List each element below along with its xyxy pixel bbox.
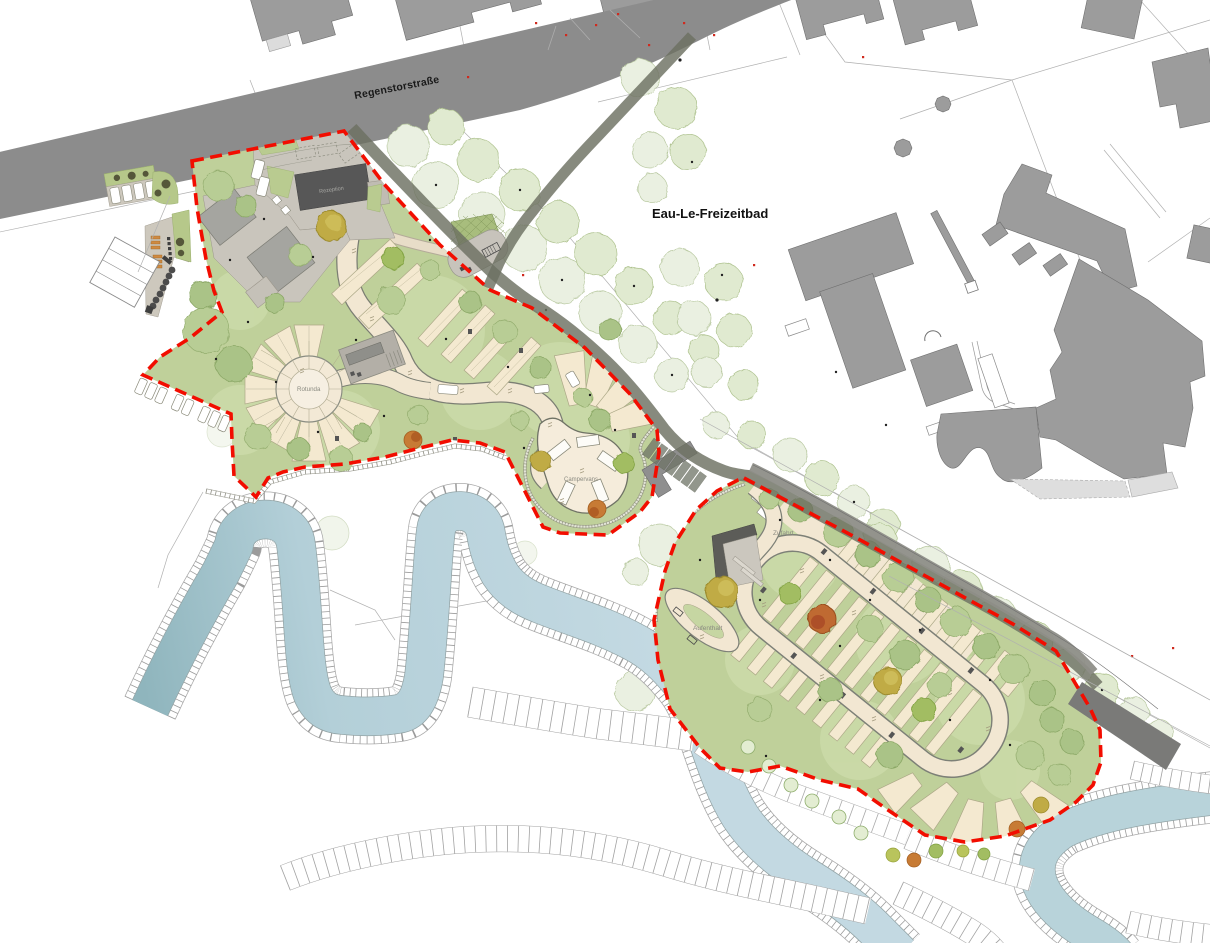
svg-text:Rotunda: Rotunda	[297, 386, 321, 393]
svg-text:Eau-Le-Freizeitbad: Eau-Le-Freizeitbad	[652, 206, 768, 221]
svg-text:Campervans: Campervans	[564, 477, 598, 483]
svg-text:Zufahrt: Zufahrt	[773, 530, 794, 537]
svg-text:Aufenthalt: Aufenthalt	[693, 625, 722, 632]
